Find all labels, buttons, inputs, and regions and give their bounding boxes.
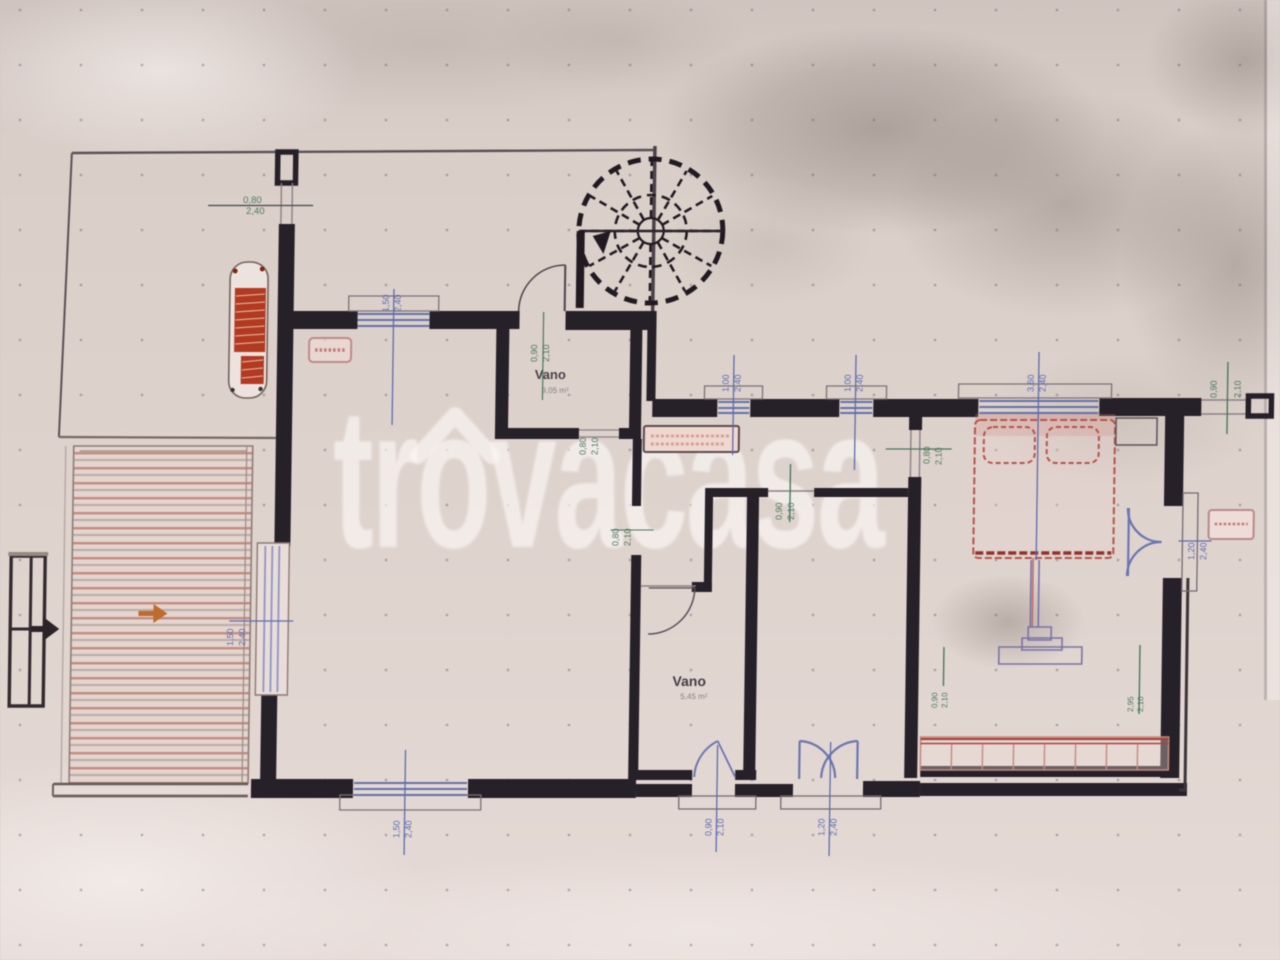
svg-text:2,10: 2,10 [940, 692, 949, 708]
svg-text:2,10: 2,10 [715, 818, 725, 836]
svg-text:1,20: 1,20 [816, 818, 826, 836]
svg-text:2,40: 2,40 [1198, 542, 1208, 560]
svg-text:2,10: 2,10 [590, 437, 600, 455]
svg-text:0,90: 0,90 [774, 502, 784, 520]
svg-text:2,10: 2,10 [1232, 380, 1242, 398]
svg-text:0,90: 0,90 [529, 344, 539, 362]
svg-text:2,40: 2,40 [393, 294, 403, 312]
svg-text:0,80: 0,80 [610, 528, 620, 546]
svg-text:0,90: 0,90 [1208, 380, 1218, 398]
svg-text:0,80: 0,80 [922, 446, 932, 464]
svg-text:2,40: 2,40 [246, 206, 265, 217]
svg-text:1,20: 1,20 [1186, 542, 1196, 560]
svg-text:0,90: 0,90 [930, 692, 939, 708]
svg-text:Vano: Vano [672, 673, 706, 689]
svg-text:2,40: 2,40 [855, 374, 865, 392]
svg-text:1,00: 1,00 [843, 374, 853, 392]
svg-text:5,45 m²: 5,45 m² [680, 692, 708, 701]
svg-text:0,80: 0,80 [578, 437, 588, 455]
svg-text:0,80: 0,80 [243, 195, 262, 206]
svg-text:9,05 m²: 9,05 m² [541, 386, 569, 395]
svg-text:2,10: 2,10 [934, 447, 944, 465]
svg-text:1,50: 1,50 [225, 628, 235, 646]
svg-text:2,40: 2,40 [403, 820, 413, 838]
svg-text:Vano: Vano [535, 367, 566, 382]
svg-text:2,10: 2,10 [541, 344, 551, 362]
svg-text:2,10: 2,10 [1136, 696, 1145, 712]
svg-text:3,60: 3,60 [1026, 374, 1036, 392]
svg-text:1,50: 1,50 [381, 294, 391, 312]
svg-text:2,10: 2,10 [622, 528, 632, 546]
svg-text:2,40: 2,40 [237, 628, 247, 646]
svg-text:2,40: 2,40 [733, 374, 743, 392]
svg-text:2,95: 2,95 [1126, 696, 1135, 712]
svg-text:0,90: 0,90 [703, 818, 713, 836]
svg-text:2,40: 2,40 [1038, 374, 1048, 392]
svg-text:2,40: 2,40 [828, 818, 838, 836]
svg-text:1,50: 1,50 [391, 820, 401, 838]
svg-text:2,10: 2,10 [786, 502, 796, 520]
svg-text:1,00: 1,00 [721, 374, 731, 392]
